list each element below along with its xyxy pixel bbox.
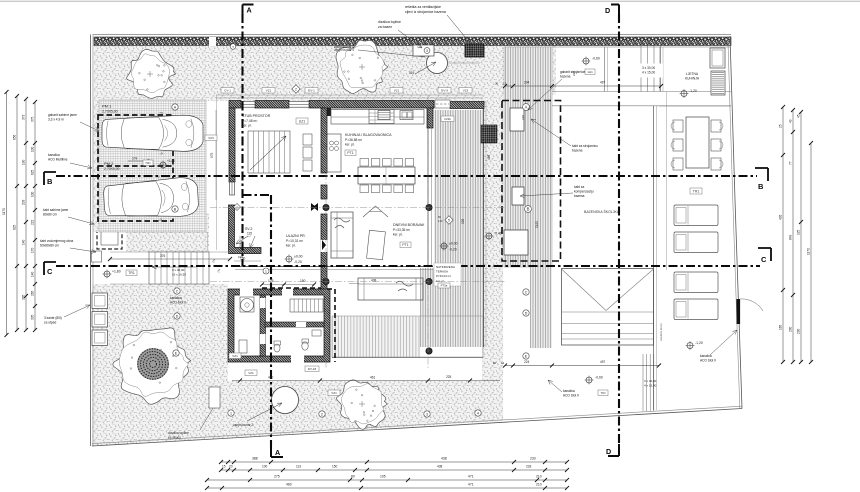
svg-text:460: 460 — [286, 483, 292, 487]
svg-text:375: 375 — [31, 116, 35, 122]
svg-text:426: 426 — [779, 214, 783, 220]
svg-text:PT1: PT1 — [347, 151, 353, 155]
svg-text:100: 100 — [262, 465, 268, 469]
svg-text:3 kante (80l): 3 kante (80l) — [44, 316, 62, 320]
svg-text:471: 471 — [468, 483, 474, 487]
svg-text:TERASA: TERASA — [436, 270, 448, 274]
svg-text:PT1: PT1 — [402, 243, 408, 247]
svg-text:A: A — [275, 448, 280, 457]
svg-text:TR1: TR1 — [145, 161, 151, 165]
svg-text:230: 230 — [521, 115, 525, 120]
svg-text:100: 100 — [238, 255, 243, 259]
svg-text:150: 150 — [332, 465, 338, 469]
svg-text:438: 438 — [437, 465, 443, 469]
svg-text:656: 656 — [13, 134, 17, 140]
svg-text:ACO Slot II: ACO Slot II — [170, 301, 186, 305]
svg-text:2,70X5,00: 2,70X5,00 — [104, 167, 120, 171]
svg-text:115: 115 — [247, 232, 252, 236]
svg-text:80: 80 — [493, 361, 497, 365]
svg-text:C: C — [761, 255, 767, 264]
svg-text:TRI: TRI — [601, 391, 606, 395]
svg-text:DV-18: DV-18 — [308, 367, 317, 371]
svg-text:4 x 15,00: 4 x 15,00 — [644, 384, 657, 388]
svg-text:-0,40: -0,40 — [494, 232, 502, 236]
svg-text:KUHINJA / BLAGOVAONICA: KUHINJA / BLAGOVAONICA — [345, 133, 392, 137]
svg-text:rešetka za ventilacijske: rešetka za ventilacijske — [405, 5, 441, 9]
svg-text:KUHINJA: KUHINJA — [685, 77, 700, 81]
svg-text:upojni bunar 2: upojni bunar 2 — [233, 423, 253, 427]
svg-text:ACO Multiline: ACO Multiline — [48, 158, 68, 162]
svg-text:ker. pl.: ker. pl. — [286, 244, 296, 248]
svg-text:PM 2: PM 2 — [104, 161, 114, 166]
svg-text:gabarit strojarnice: gabarit strojarnice — [560, 70, 586, 74]
svg-text:V21: V21 — [394, 89, 400, 93]
svg-text:1: 1 — [265, 270, 267, 274]
svg-text:458: 458 — [487, 154, 491, 160]
svg-text:45: 45 — [797, 114, 801, 118]
svg-text:203: 203 — [22, 199, 26, 205]
svg-text:B: B — [527, 207, 530, 212]
svg-text:925: 925 — [461, 218, 465, 224]
svg-text:VZ1: VZ1 — [232, 354, 238, 358]
svg-text:-1,20: -1,20 — [689, 89, 697, 93]
svg-text:1H1: 1H1 — [587, 70, 593, 74]
svg-text:C: C — [47, 267, 53, 276]
svg-text:275: 275 — [274, 475, 280, 479]
svg-text:3,3 x 4,9 m: 3,3 x 4,9 m — [48, 118, 64, 122]
svg-text:V23: V23 — [463, 89, 469, 93]
svg-text:±0,00: ±0,00 — [294, 255, 303, 259]
svg-text:16 x 16,50: 16 x 16,50 — [172, 272, 186, 276]
svg-text:3: 3 — [426, 413, 428, 417]
svg-text:-1,20: -1,20 — [695, 341, 703, 345]
svg-text:kanalica: kanalica — [563, 389, 575, 393]
svg-text:-0,60: -0,60 — [592, 57, 600, 61]
svg-text:388: 388 — [252, 457, 258, 461]
svg-text:P=33,35 m²: P=33,35 m² — [393, 228, 411, 232]
svg-text:140: 140 — [31, 271, 35, 277]
svg-text:cijevi iz strojarnice bazena: cijevi iz strojarnice bazena — [405, 10, 446, 14]
svg-text:5: 5 — [448, 219, 450, 223]
svg-text:230: 230 — [789, 326, 793, 332]
svg-text:ACO Slot II: ACO Slot II — [563, 394, 579, 398]
svg-text:80: 80 — [351, 475, 355, 479]
svg-text:204: 204 — [524, 81, 530, 85]
svg-text:TR1: TR1 — [693, 190, 700, 194]
svg-text:+1,80: +1,80 — [112, 270, 121, 274]
svg-text:335: 335 — [31, 314, 35, 320]
svg-text:3 x 30,00: 3 x 30,00 — [644, 379, 657, 383]
svg-text:3: 3 — [426, 49, 428, 53]
svg-text:13: 13 — [503, 82, 507, 86]
svg-text:bazena: bazena — [574, 194, 585, 198]
svg-text:113: 113 — [296, 465, 301, 469]
svg-text:+1,80: +1,80 — [167, 159, 175, 163]
svg-text:D: D — [605, 6, 610, 15]
svg-text:20: 20 — [229, 465, 233, 469]
svg-text:925: 925 — [797, 229, 801, 235]
svg-text:±0,00: ±0,00 — [449, 242, 458, 246]
svg-text:SV-2: SV-2 — [245, 227, 252, 231]
svg-text:P=33,04 m²: P=33,04 m² — [436, 274, 451, 278]
svg-text:C: C — [525, 291, 528, 295]
svg-text:ker. pl.: ker. pl. — [436, 279, 445, 283]
svg-text:3 x 30,00: 3 x 30,00 — [642, 66, 655, 70]
svg-text:V21: V21 — [266, 89, 272, 93]
svg-text:438: 438 — [441, 457, 447, 461]
svg-text:1170: 1170 — [2, 208, 6, 215]
svg-text:kanalica: kanalica — [170, 296, 182, 300]
svg-text:V23b: V23b — [444, 117, 451, 121]
svg-text:D: D — [525, 312, 528, 316]
svg-text:419: 419 — [409, 71, 415, 75]
svg-text:upojni bunar 1: upojni bunar 1 — [334, 45, 354, 49]
svg-text:T: T — [232, 45, 234, 49]
svg-text:1: 1 — [230, 412, 232, 416]
svg-text:1%: 1% — [132, 157, 138, 161]
svg-text:233: 233 — [530, 457, 536, 461]
svg-text:D: D — [606, 447, 611, 456]
svg-text:UZ1: UZ1 — [299, 120, 306, 124]
svg-text:ACO Slot II: ACO Slot II — [700, 359, 716, 363]
svg-text:gabarit sabirne jame: gabarit sabirne jame — [48, 113, 77, 117]
svg-text:PT5a: PT5a — [441, 284, 448, 288]
svg-text:-0,60: -0,60 — [595, 376, 603, 380]
svg-text:497: 497 — [600, 81, 606, 85]
svg-text:bazena: bazena — [572, 149, 583, 153]
svg-text:za okuću: za okuću — [168, 436, 181, 440]
svg-text:438: 438 — [371, 279, 377, 283]
svg-text:LJETNA: LJETNA — [686, 72, 699, 76]
svg-text:15: 15 — [222, 465, 226, 469]
svg-text:13: 13 — [501, 361, 505, 365]
svg-text:EV-1: EV-1 — [308, 89, 315, 93]
svg-text:373: 373 — [22, 114, 26, 120]
svg-text:9 x 30,00: 9 x 30,00 — [172, 268, 185, 272]
svg-text:za bazen: za bazen — [378, 25, 392, 29]
svg-text:25: 25 — [779, 124, 783, 128]
svg-text:140: 140 — [438, 219, 443, 223]
svg-text:125: 125 — [268, 279, 274, 283]
svg-text:77: 77 — [789, 161, 793, 165]
svg-text:80x80 cm: 80x80 cm — [43, 213, 57, 217]
svg-text:uredeni teren: uredeni teren — [659, 323, 663, 341]
svg-text:V21: V21 — [248, 371, 254, 375]
svg-text:C: C — [176, 290, 179, 294]
svg-text:P=7,48 m²: P=7,48 m² — [242, 119, 258, 123]
svg-text:222: 222 — [31, 219, 35, 225]
svg-text:165: 165 — [779, 324, 783, 330]
svg-text:210: 210 — [536, 483, 542, 487]
svg-text:šaht za: šaht za — [574, 185, 585, 189]
svg-text:bazena: bazena — [560, 75, 571, 79]
svg-text:VZ1: VZ1 — [331, 391, 337, 395]
svg-text:1145: 1145 — [535, 221, 539, 228]
svg-text:D: D — [176, 315, 179, 319]
svg-text:100: 100 — [31, 191, 35, 197]
svg-text:-0,20: -0,20 — [294, 260, 302, 264]
svg-text:ker. pl.: ker. pl. — [393, 233, 403, 237]
svg-text:B: B — [758, 182, 764, 191]
svg-text:kompenzaciju: kompenzaciju — [574, 190, 594, 194]
svg-text:BAZENSKA ŠKOLJKA: BAZENSKA ŠKOLJKA — [584, 209, 620, 214]
svg-text:471: 471 — [468, 475, 474, 479]
svg-text:2: 2 — [321, 413, 323, 417]
svg-text:ULAZNI PR.: ULAZNI PR. — [286, 234, 306, 238]
svg-text:P=36,58 m²: P=36,58 m² — [345, 138, 363, 142]
svg-text:šaht za strojarnicu: šaht za strojarnicu — [572, 144, 598, 148]
svg-text:60x80x80 cm: 60x80x80 cm — [40, 244, 59, 248]
svg-text:625: 625 — [31, 169, 35, 175]
svg-text:šaht vodomjernog okna: šaht vodomjernog okna — [40, 239, 73, 243]
svg-text:410: 410 — [268, 376, 274, 380]
svg-text:100: 100 — [31, 146, 35, 152]
svg-text:625: 625 — [13, 224, 17, 230]
svg-text:-0,20: -0,20 — [449, 248, 457, 252]
svg-text:P=10,31 m²: P=10,31 m² — [286, 239, 304, 243]
svg-text:1%: 1% — [216, 268, 221, 274]
svg-text:210: 210 — [536, 475, 542, 479]
svg-text:A: A — [247, 6, 252, 15]
svg-text:140: 140 — [22, 239, 26, 245]
svg-text:105: 105 — [380, 475, 386, 479]
svg-text:dizalica topline: dizalica topline — [378, 20, 401, 24]
svg-text:dizalica topline: dizalica topline — [168, 431, 189, 435]
svg-text:V23: V23 — [208, 136, 214, 140]
svg-text:150: 150 — [300, 279, 306, 283]
svg-text:ker. pl.: ker. pl. — [345, 143, 355, 147]
svg-text:335: 335 — [22, 294, 26, 300]
svg-text:461: 461 — [370, 376, 376, 380]
svg-text:za otpad: za otpad — [44, 321, 56, 325]
svg-text:kanalica: kanalica — [48, 153, 60, 157]
svg-text:2%: 2% — [211, 258, 216, 264]
svg-text:2: 2 — [295, 88, 297, 92]
svg-text:A: A — [525, 105, 528, 110]
svg-text:B: B — [47, 177, 53, 186]
svg-text:šaht sabirne jame: šaht sabirne jame — [43, 208, 68, 212]
svg-text:225: 225 — [446, 375, 452, 379]
svg-text:1170: 1170 — [807, 248, 811, 255]
svg-text:2,70X5,00: 2,70X5,00 — [102, 110, 118, 114]
svg-text:TR1: TR1 — [128, 271, 135, 275]
svg-text:NATKRIVENA: NATKRIVENA — [436, 265, 455, 269]
svg-text:DV-9: DV-9 — [441, 89, 448, 93]
svg-text:170: 170 — [31, 247, 35, 253]
svg-text:975: 975 — [210, 152, 214, 158]
svg-text:STUB PROSTOR: STUB PROSTOR — [242, 114, 271, 118]
svg-text:PM 1: PM 1 — [102, 104, 112, 109]
svg-text:CV-1: CV-1 — [224, 89, 231, 93]
svg-text:224: 224 — [524, 360, 530, 364]
svg-text:190: 190 — [22, 159, 26, 165]
svg-text:30: 30 — [495, 82, 499, 86]
svg-text:4: 4 — [477, 412, 479, 416]
svg-text:849: 849 — [789, 234, 793, 240]
svg-text:497: 497 — [600, 360, 606, 364]
svg-text:DNEVNI BORAVAK: DNEVNI BORAVAK — [393, 223, 425, 227]
svg-text:4 x 15,00: 4 x 15,00 — [642, 71, 655, 75]
svg-text:376: 376 — [160, 254, 166, 258]
svg-text:265: 265 — [31, 290, 35, 296]
svg-text:233: 233 — [526, 465, 532, 469]
svg-text:49: 49 — [789, 119, 793, 123]
svg-text:230: 230 — [797, 328, 801, 334]
